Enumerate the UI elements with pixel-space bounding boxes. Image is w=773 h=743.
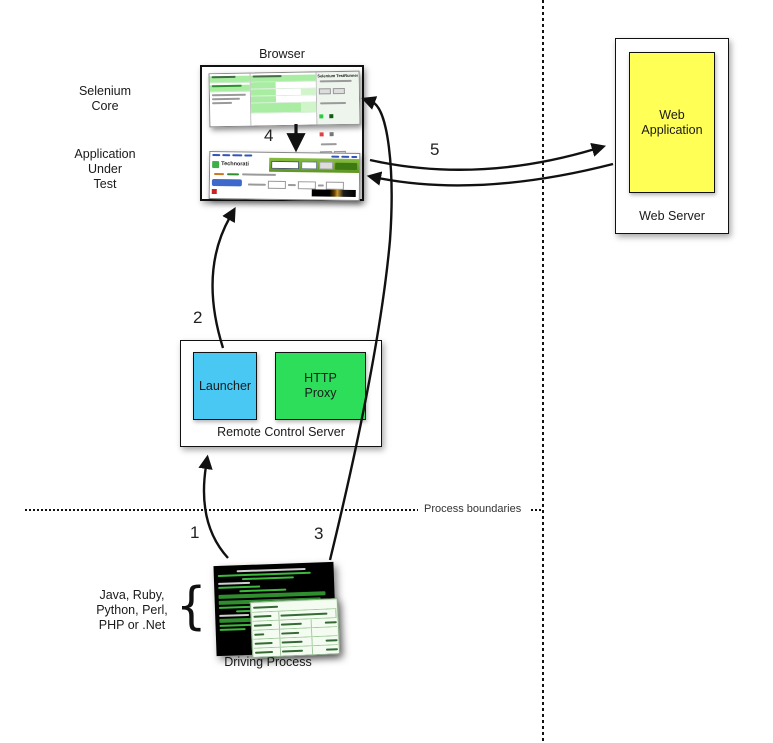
selenium-test-table-screenshot	[250, 598, 340, 658]
testrunner-selected-button	[333, 88, 345, 94]
arrow-5-browser-to-webserver	[370, 149, 595, 170]
remote-control-server-label: Remote Control Server	[191, 425, 371, 440]
http-proxy-box: HTTP Proxy	[275, 352, 366, 420]
web-application-label: Web Application	[632, 108, 712, 138]
selenium-testrunner-screenshot: Selenium TestRunner	[209, 71, 361, 128]
testrunner-incomplete-legend	[330, 132, 334, 136]
technorati-blog-posts-tab	[212, 179, 242, 186]
remote-control-server-box: Launcher HTTP Proxy Remote Control Serve…	[180, 340, 382, 447]
process-boundaries-label: Process boundaries	[424, 502, 530, 517]
browser-label: Browser	[232, 47, 332, 62]
languages-label: Java, Ruby, Python, Perl, PHP or .Net	[77, 588, 187, 633]
step-2-label: 2	[193, 308, 202, 328]
technorati-search-type-select	[301, 161, 317, 169]
testrunner-failed-legend	[319, 132, 323, 136]
technorati-logo: Technorati	[210, 157, 269, 172]
testrunner-control-pane: Selenium TestRunner	[316, 72, 359, 125]
step-4-label: 4	[264, 126, 273, 146]
testrunner-all-button	[319, 88, 331, 94]
technorati-filter-form	[248, 180, 344, 189]
technorati-search-button	[319, 161, 333, 169]
step-3-label: 3	[314, 524, 323, 544]
testrunner-done-legend	[330, 114, 334, 118]
application-under-test-screenshot: Technorati	[209, 151, 361, 201]
technorati-advanced-search	[335, 162, 357, 169]
http-proxy-label: HTTP Proxy	[295, 371, 347, 401]
process-boundary-line-right	[531, 509, 542, 511]
testrunner-test-suite-pane	[210, 74, 252, 127]
web-server-label: Web Server	[622, 209, 722, 224]
selenium-core-label: Selenium Core	[55, 84, 155, 114]
vertical-boundary-line	[542, 0, 544, 743]
testrunner-test-table-pane	[251, 72, 317, 125]
testrunner-title: Selenium TestRunner	[317, 73, 357, 79]
web-application-box: Web Application	[629, 52, 715, 193]
selenium-rc-architecture-diagram: Process boundaries Selenium Core Applica…	[0, 0, 773, 743]
technorati-feed-icon	[212, 189, 217, 194]
application-under-test-label: Application Under Test	[55, 147, 155, 192]
browser-box: Selenium TestRunner	[200, 65, 364, 201]
technorati-results-area	[210, 177, 359, 198]
launcher-box: Launcher	[193, 352, 257, 420]
arrow-5-webserver-to-browser	[378, 164, 613, 185]
arrow-1-driving-to-rcserver	[204, 466, 228, 558]
step-5-label: 5	[430, 140, 439, 160]
arrow-2-rcserver-to-browser	[213, 217, 230, 348]
technorati-logo-icon	[212, 160, 219, 167]
technorati-search-bar	[269, 158, 360, 173]
step-1-label: 1	[190, 523, 199, 543]
driving-process-label: Driving Process	[218, 655, 318, 670]
launcher-label: Launcher	[199, 379, 251, 394]
process-boundary-line-left	[25, 509, 418, 511]
languages-brace: {	[176, 577, 207, 636]
technorati-search-input	[271, 161, 299, 169]
technorati-banner	[312, 189, 356, 197]
web-server-box: Web Application Web Server	[615, 38, 729, 234]
testrunner-passed-legend	[319, 114, 323, 118]
